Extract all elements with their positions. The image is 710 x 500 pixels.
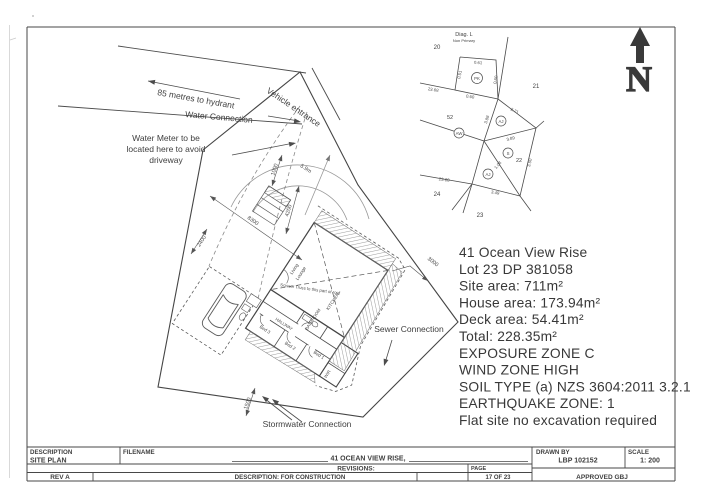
tb-drawnby-label: DRAWN BY [536, 449, 571, 456]
tb-page-label: PAGE [471, 466, 487, 472]
water-meter-label-3: driveway [149, 155, 183, 165]
annotation-water-meter: Water Meter to be located here to avoid … [127, 133, 297, 165]
survey-dim-389: 3.89 [506, 135, 516, 142]
dim-1000: 1000 [270, 163, 279, 177]
survey-dim-388: 3.88 [483, 114, 491, 124]
info-line-8: SOIL TYPE (a) NZS 3604:2011 3.2.1 [459, 379, 691, 394]
info-line-9: EARTHQUAKE ZONE: 1 [459, 396, 615, 411]
marker-s: S [507, 151, 510, 156]
survey-dim-061: 0.61 [474, 60, 483, 66]
info-line-5: Total: 228.35m² [459, 329, 557, 344]
site-info: 41 Ocean View Rise Lot 23 DP 381058 Site… [459, 245, 691, 428]
survey-dim-271: 2.71 [510, 107, 520, 116]
annotation-stormwater: Stormwater Connection [260, 394, 351, 429]
sewer-label: Sewer Connection [374, 324, 444, 334]
steps-pad [252, 186, 290, 225]
stormwater-label: Stormwater Connection [263, 419, 352, 429]
tb-page-value: 17 OF 23 [485, 475, 511, 481]
annotation-sewer: Sewer Connection [374, 324, 444, 367]
north-arrow-head [630, 27, 650, 46]
parcel-24: 24 [434, 192, 441, 198]
tb-filename-label: FILENAME [123, 449, 155, 456]
tb-description-value: SITE PLAN [30, 458, 67, 465]
survey-diagram: PK AJ S AJ AW Diag. L Non Primary 20 21 … [420, 32, 544, 219]
survey-markers [454, 73, 513, 180]
tb-filename-value: 41 OCEAN VIEW RISE, [330, 456, 405, 463]
survey-dim-349: 3.49 [491, 189, 501, 195]
info-line-0: 41 Ocean View Rise [459, 245, 587, 260]
tb-revisions-label: REVISIONS: [337, 466, 375, 473]
scan-artifacts [10, 15, 35, 478]
parcel-23: 23 [477, 213, 484, 219]
tb-approved-value: APPROVED GBJ [576, 474, 628, 481]
title-block: DESCRIPTION SITE PLAN FILENAME 41 OCEAN … [27, 447, 675, 481]
turning-arcs [231, 154, 369, 220]
annotation-hydrant: 85 metres to hydrant [148, 79, 240, 111]
house-plan: Living Lounge Scissor Truss to this part… [172, 174, 423, 423]
survey-dim-350: 3.50 [526, 157, 533, 167]
survey-dim-2368a: 23.68 [428, 86, 440, 93]
north-letter: N [626, 59, 652, 99]
dim-2400: 2400 [196, 235, 208, 249]
water-connection-label: Water Connection [185, 109, 254, 125]
site-plan-sheet: Living Lounge Scissor Truss to this part… [0, 0, 710, 500]
info-line-6: EXPOSURE ZONE C [459, 346, 595, 361]
parcel-22: 22 [516, 158, 522, 164]
tb-scale-value: 1: 200 [640, 458, 660, 465]
info-line-2: Site area: 711m² [459, 279, 563, 294]
parcel-20: 20 [434, 45, 441, 51]
info-line-7: WIND ZONE HIGH [459, 363, 579, 378]
tb-description-label: DESCRIPTION [30, 449, 73, 456]
info-line-4: Deck area: 54.41m² [459, 312, 584, 327]
tb-rev-description: DESCRIPTION: FOR CONSTRUCTION [235, 474, 346, 481]
water-meter-label-2: located here to avoid [127, 144, 206, 154]
info-line-3: House area: 173.94m² [459, 295, 600, 310]
info-line-10: Flat site no excavation required [459, 413, 657, 428]
parcel-52: 52 [447, 115, 453, 121]
survey-dim-2368b: 23.68 [439, 176, 451, 182]
tb-rev-value: REV A [50, 474, 70, 481]
tb-drawnby-value: LBP 102152 [558, 458, 597, 465]
north-arrow: N [626, 27, 652, 99]
survey-dim-051: 0.51 [456, 69, 463, 79]
dim-59m: 5.9m [299, 163, 313, 175]
water-meter-label-1: Water Meter to be [132, 133, 200, 143]
marker-pk: PK [474, 76, 480, 81]
dim-1500: 1500 [243, 397, 253, 411]
marker-aj-lower: AJ [485, 172, 490, 177]
survey-dim-060a: 0.60 [492, 75, 498, 85]
marker-aw: AW [456, 131, 464, 136]
info-line-1: Lot 23 DP 381058 [459, 262, 573, 277]
dim-3000: 3000 [426, 256, 439, 268]
parcel-21: 21 [533, 84, 540, 90]
marker-aj-upper: AJ [498, 119, 503, 124]
tb-scale-label: SCALE [628, 449, 649, 456]
car [200, 281, 248, 338]
survey-diag-subtitle: Non Primary [453, 38, 475, 43]
survey-dim-108: 1.08 [493, 160, 503, 170]
survey-dim-060b: 0.60 [466, 93, 476, 99]
